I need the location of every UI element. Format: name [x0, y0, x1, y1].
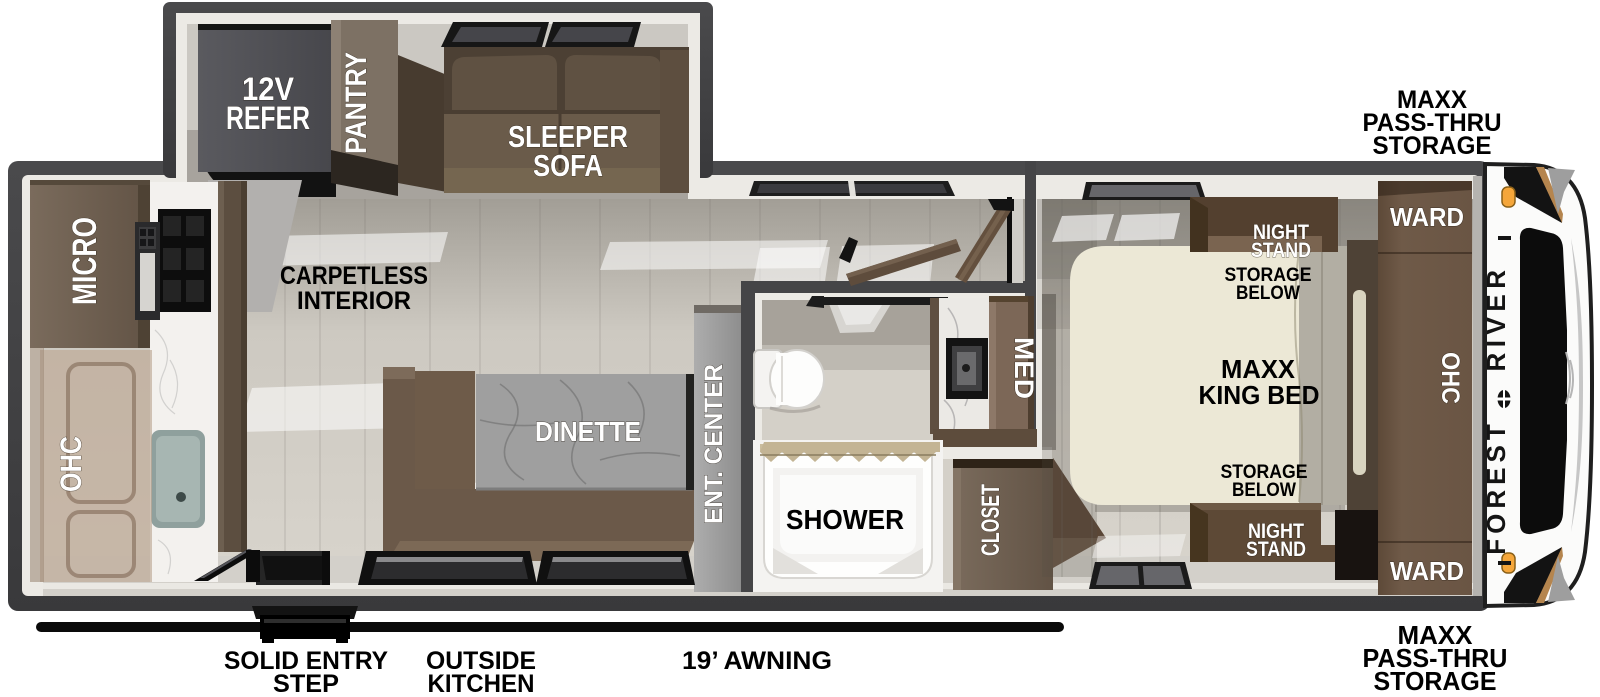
svg-text:OHC: OHC	[1436, 352, 1464, 404]
svg-text:FOREST: FOREST	[1481, 419, 1511, 554]
svg-text:STORAGE: STORAGE	[1373, 132, 1492, 160]
svg-text:DINETTE: DINETTE	[535, 416, 641, 447]
svg-text:MICRO: MICRO	[66, 217, 104, 305]
svg-text:BELOW: BELOW	[1236, 283, 1300, 304]
svg-text:MED: MED	[1009, 337, 1039, 399]
svg-text:ENT. CENTER: ENT. CENTER	[700, 364, 728, 524]
svg-text:SOFA: SOFA	[533, 148, 603, 183]
svg-text:STAND: STAND	[1246, 538, 1306, 561]
svg-text:CARPETLESS: CARPETLESS	[280, 262, 428, 290]
svg-text:19’ AWNING: 19’ AWNING	[682, 647, 832, 675]
svg-text:PANTRY: PANTRY	[340, 52, 373, 154]
svg-text:WARD: WARD	[1390, 556, 1464, 586]
svg-text:STAND: STAND	[1251, 239, 1311, 262]
svg-text:KITCHEN: KITCHEN	[428, 670, 535, 697]
svg-text:RIVER: RIVER	[1481, 265, 1511, 372]
svg-text:INTERIOR: INTERIOR	[297, 287, 411, 315]
svg-text:OHC: OHC	[55, 436, 88, 492]
svg-text:BELOW: BELOW	[1232, 480, 1296, 501]
svg-text:SHOWER: SHOWER	[786, 504, 904, 535]
svg-text:STEP: STEP	[273, 670, 339, 697]
svg-text:WARD: WARD	[1390, 202, 1464, 232]
svg-text:CLOSET: CLOSET	[977, 484, 1005, 556]
svg-text:KING BED: KING BED	[1199, 380, 1320, 410]
svg-text:REFER: REFER	[226, 100, 310, 136]
svg-text:STORAGE: STORAGE	[1374, 666, 1497, 696]
